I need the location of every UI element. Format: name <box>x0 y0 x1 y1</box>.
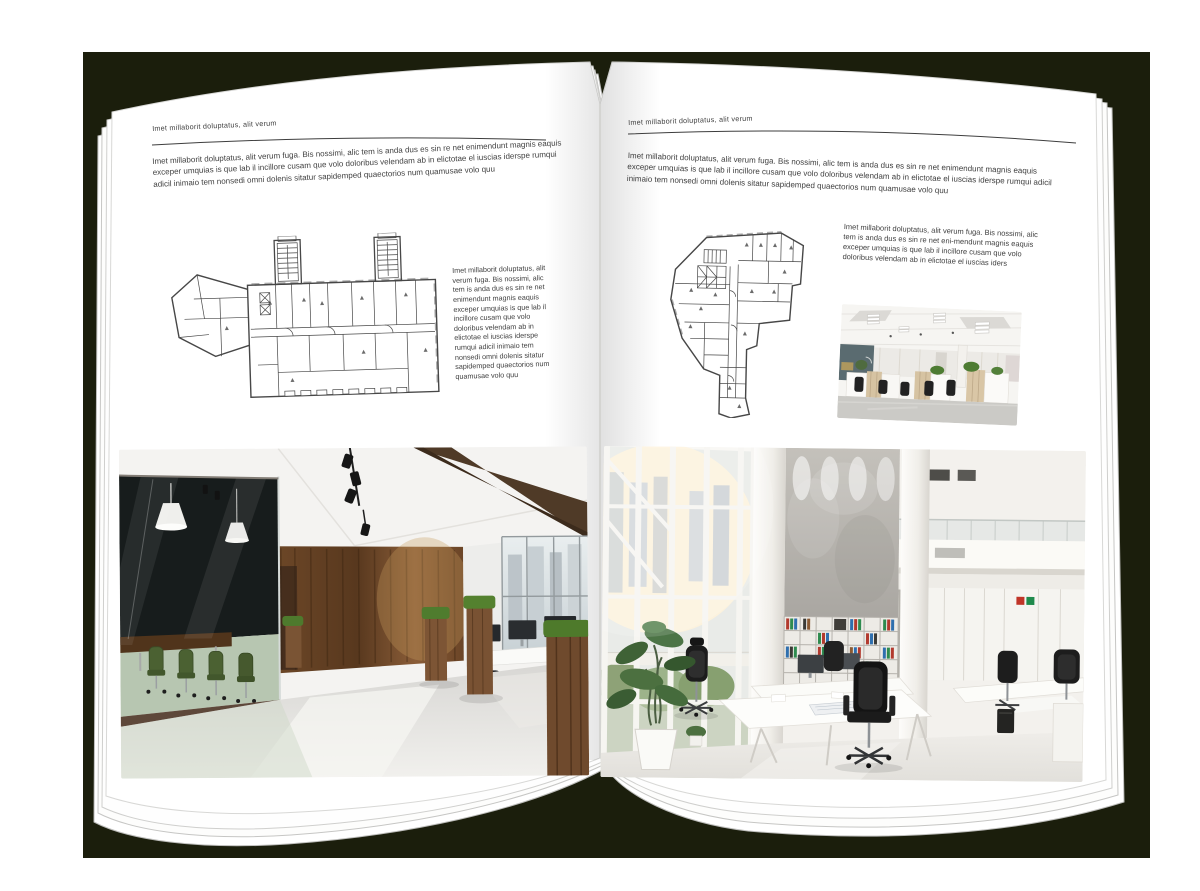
right-page: Imet millaborit doluptatus, alit verum I… <box>600 0 1200 891</box>
left-office-photo <box>119 446 589 778</box>
left-page: Imet millaborit doluptatus, alit verum I… <box>0 0 600 891</box>
magazine-mockup-scene: Imet millaborit doluptatus, alit verum I… <box>0 0 1200 891</box>
left-sidebar-text: Imet millaborit doluptatus, alit verum f… <box>452 263 555 382</box>
floor-plan-irregular-building-drawing <box>656 224 808 419</box>
right-intro-paragraph: Imet millaborit doluptatus, alit verum f… <box>627 150 1064 201</box>
left-kicker: Imet millaborit doluptatus, alit verum <box>152 118 277 133</box>
floor-plan-wide-building-drawing <box>162 231 445 408</box>
bright-office-desks-image <box>837 304 1022 426</box>
office-interior-atrium-image <box>601 446 1086 782</box>
right-floor-plan <box>656 224 808 419</box>
right-sidebar-text: Imet millaborit doluptatus, alit verum f… <box>842 222 1040 270</box>
left-floor-plan <box>162 231 445 408</box>
right-kicker-rule <box>626 128 1078 148</box>
right-office-photo <box>601 446 1086 782</box>
right-small-office-photo <box>837 304 1022 426</box>
right-kicker: Imet millaborit doluptatus, alit verum <box>628 114 753 127</box>
office-interior-wood-glass-image <box>119 446 589 778</box>
